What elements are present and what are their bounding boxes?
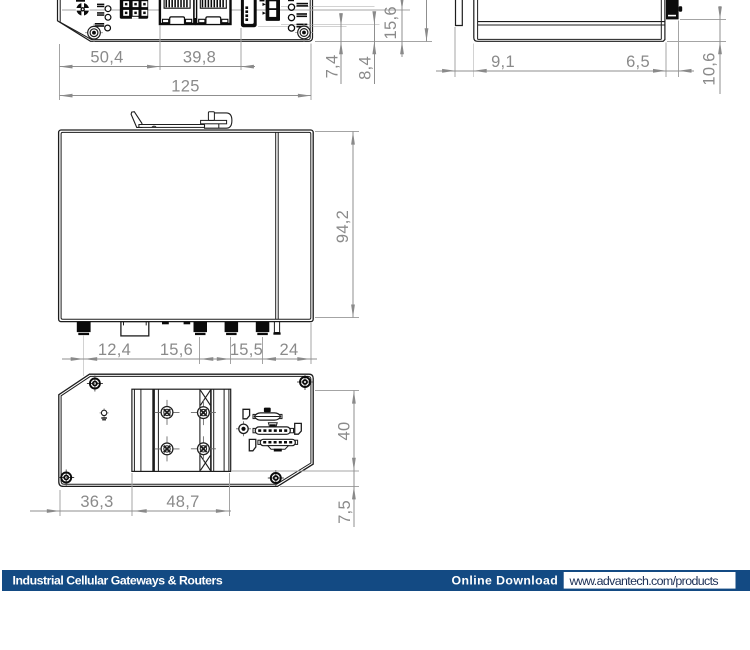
svg-text:6,5: 6,5 [626,53,650,71]
svg-text:Online Download: Online Download [452,574,559,588]
svg-text:www.advantech.com/products: www.advantech.com/products [569,574,719,588]
svg-text:48,7: 48,7 [166,493,199,511]
svg-text:7,4: 7,4 [324,55,342,79]
svg-text:15,6: 15,6 [160,341,193,359]
svg-text:94,2: 94,2 [334,210,352,243]
svg-text:36,3: 36,3 [80,493,113,511]
svg-text:7,5: 7,5 [336,500,354,524]
svg-text:9,1: 9,1 [491,53,515,71]
svg-text:40: 40 [336,422,354,441]
svg-text:39,8: 39,8 [183,49,216,67]
svg-text:12,4: 12,4 [98,341,131,359]
svg-text:8,4: 8,4 [357,56,375,80]
svg-text:24: 24 [280,341,299,359]
svg-text:10,6: 10,6 [701,52,719,85]
svg-text:50,4: 50,4 [90,49,123,67]
svg-text:125: 125 [171,78,199,96]
svg-text:15,5: 15,5 [230,341,263,359]
svg-text:Industrial Cellular Gateways &: Industrial Cellular Gateways & Routers [13,574,223,588]
svg-text:15,6: 15,6 [382,6,400,39]
